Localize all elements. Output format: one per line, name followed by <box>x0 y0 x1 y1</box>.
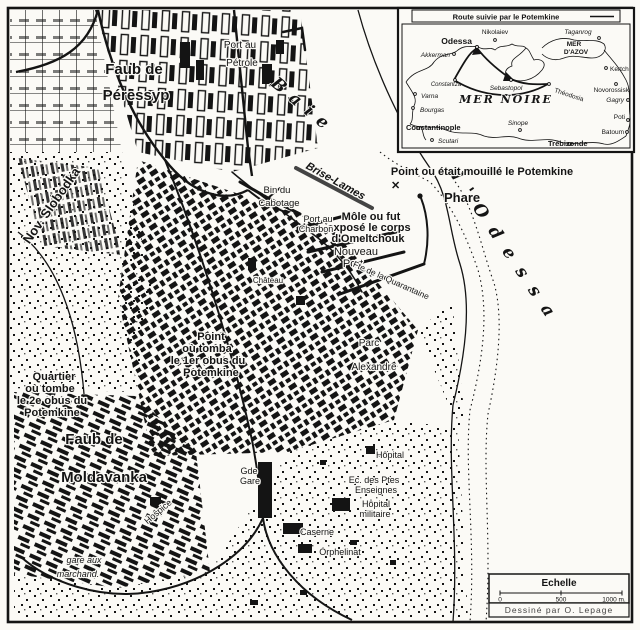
inset-label-sinope: Sinope <box>508 120 529 127</box>
inset-map: Route suivie par le Potemkine <box>398 8 634 152</box>
label-point-mouille: Point ou était mouillé le Potemkine <box>391 166 573 178</box>
phare-dot <box>417 193 422 198</box>
credit-text: Dessiné par O. Lepage <box>505 605 613 615</box>
label-obus1-2: où tomba <box>182 343 232 355</box>
label-enseignes-2: Enseignes <box>355 485 398 495</box>
label-obus1-3: le 1er obus du <box>171 355 246 367</box>
label-faub-peressyp-1: Faub de <box>105 61 163 78</box>
label-marchand-1: gare aux <box>66 555 102 565</box>
inset-label-trebizonde: Trébizonde <box>548 139 588 148</box>
label-faub-peressyp-2: Péressyp <box>103 87 170 104</box>
label-mole-3: d'Omeltchouk <box>332 233 406 245</box>
label-hopital-mil-2: militaire <box>359 509 390 519</box>
label-hopital: Hôpital <box>376 450 404 460</box>
inset-label-kertch: Kertch <box>610 66 629 73</box>
label-enseignes-1: Ec. des Ptes <box>349 475 400 485</box>
label-gare-1: Gde <box>240 466 257 476</box>
inset-title: Route suivie par le Potemkine <box>453 13 560 22</box>
label-cabotage-2: Cabotage <box>258 198 299 209</box>
mouillage-marker-icon: ✕ <box>391 180 400 192</box>
label-marchand-2: marchand. <box>57 569 100 579</box>
label-charbon-1: Port au <box>303 214 332 224</box>
gare-building <box>258 462 272 518</box>
inset-label-nikolaiev: Nikolaiev <box>482 29 509 36</box>
inset-label-scutari: Scutari <box>438 138 459 145</box>
label-parc-1: Parc <box>359 338 380 349</box>
label-hopital-mil-1: Hôpital <box>362 499 390 509</box>
credit-box: Dessiné par O. Lepage <box>489 603 629 617</box>
inset-label-gagry: Gagry <box>606 97 624 104</box>
label-obus1-1: Point <box>197 331 225 343</box>
inset-label-novorossisk: Novorossisk <box>594 87 630 94</box>
label-parc-2: Alexandre <box>351 362 396 373</box>
odessa-map: ✕ Faub de Péressyp Port au Pétrole Nov. … <box>0 0 640 630</box>
label-nouveau: Nouveau <box>334 246 378 258</box>
label-chateau: Château <box>253 276 283 285</box>
scale-box: Echelle 0 500 1000 m. <box>489 574 629 604</box>
inset-label-mer-noire: MER NOIRE <box>458 93 553 106</box>
inset-label-taganrog: Taganrog <box>564 29 592 36</box>
inset-label-bourgas: Bourgas <box>420 107 445 114</box>
label-faub-moldavanka-2: Moldavanka <box>61 469 148 486</box>
inset-label-batoum: Batoum <box>602 129 624 136</box>
label-orphelinat: Orphelinat <box>319 547 361 557</box>
screenshot-root: ✕ Faub de Péressyp Port au Pétrole Nov. … <box>0 0 640 630</box>
label-obus1-4: Potemkine <box>183 367 239 379</box>
label-port-petrole-1: Port au <box>224 40 256 51</box>
label-faub-moldavanka-1: Faub de <box>65 431 123 448</box>
inset-label-akkerman: Akkerman <box>420 52 451 59</box>
inset-label-mer-azov-1: MER <box>567 41 582 48</box>
label-obus2-3: le 2e obus du <box>17 395 87 407</box>
inset-label-mer-azov-2: D'AZOV <box>564 49 589 56</box>
label-obus2-2: où tombe <box>25 383 75 395</box>
label-phare: Phare <box>444 190 480 205</box>
inset-label-varna: Varna <box>421 93 438 100</box>
label-cabotage-1: Bin du <box>264 185 291 196</box>
label-caserne: Caserne <box>300 527 334 537</box>
label-obus2-1: Quartier <box>33 371 77 383</box>
inset-label-sebastopol: Sebastopol <box>490 85 523 92</box>
label-charbon-2: Charbon <box>299 224 334 234</box>
scale-title: Echelle <box>541 578 576 589</box>
inset-label-constantinople: Constantinople <box>406 123 461 132</box>
label-port-petrole-2: Pétrole <box>226 58 258 69</box>
inset-label-poti: Poti <box>614 114 625 121</box>
label-obus2-4: Potemkine <box>24 407 80 419</box>
label-gare-2: Gare <box>240 476 260 486</box>
inset-label-odessa: Odessa <box>441 36 472 46</box>
inset-label-constantza: Constantza <box>431 82 462 88</box>
